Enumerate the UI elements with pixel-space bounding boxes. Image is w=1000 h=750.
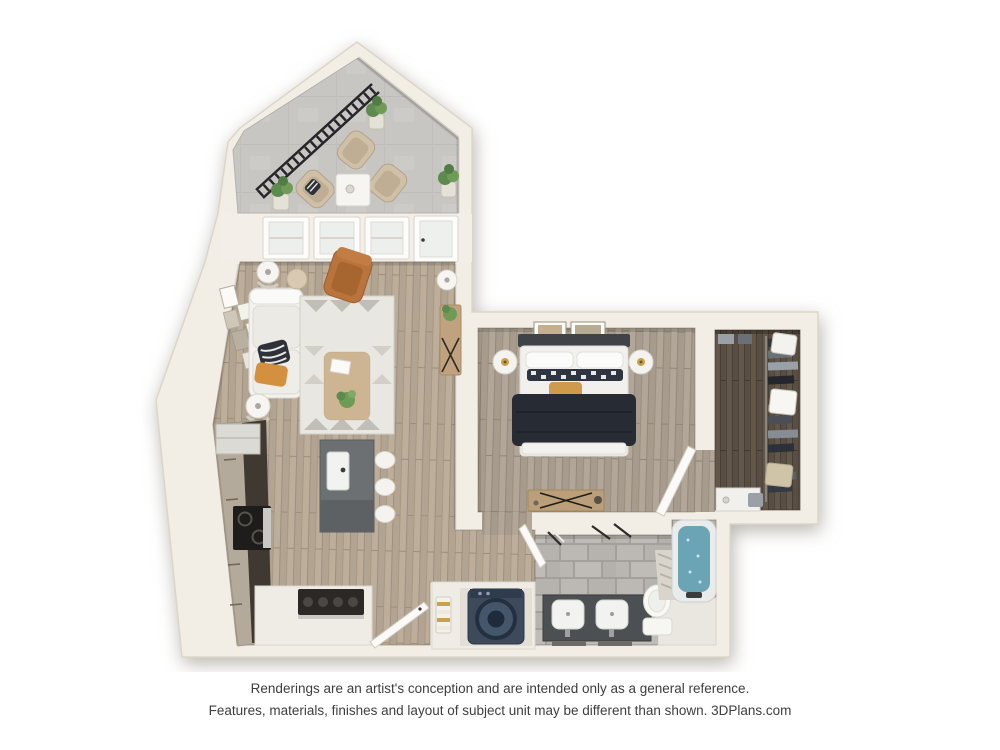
tub-faucet bbox=[686, 592, 702, 598]
closet-dresser bbox=[716, 488, 763, 511]
checkered-pillows bbox=[527, 369, 623, 381]
comforter bbox=[512, 394, 636, 446]
nightstand-left bbox=[493, 350, 517, 374]
cooktop bbox=[233, 506, 271, 550]
nightstand-right bbox=[629, 350, 653, 374]
bedroom-desk bbox=[528, 490, 604, 511]
disclaimer: Renderings are an artist's conception an… bbox=[0, 678, 1000, 722]
bedroom bbox=[478, 322, 715, 535]
kitchen-island bbox=[320, 440, 374, 532]
floor-lamp-right bbox=[437, 270, 457, 290]
bar-stools bbox=[375, 452, 395, 523]
walk-in-closet bbox=[715, 330, 800, 511]
bed bbox=[512, 334, 636, 456]
pillow bbox=[526, 352, 573, 368]
side-stool bbox=[287, 269, 307, 289]
floor-plan-rendering bbox=[0, 0, 1000, 672]
disclaimer-line-2: Features, materials, finishes and layout… bbox=[0, 700, 1000, 722]
refrigerator bbox=[216, 424, 260, 454]
balcony-side-table bbox=[336, 174, 370, 206]
floor-plan-page: Renderings are an artist's conception an… bbox=[0, 0, 1000, 750]
balcony bbox=[233, 58, 459, 213]
pillow bbox=[577, 352, 623, 368]
towel-ladder bbox=[436, 597, 451, 633]
island-sink bbox=[327, 452, 349, 490]
balcony-door bbox=[414, 216, 458, 262]
disclaimer-line-1: Renderings are an artist's conception an… bbox=[0, 678, 1000, 700]
sectional-sofa bbox=[249, 288, 303, 398]
console-table bbox=[440, 305, 461, 375]
coffee-table bbox=[324, 352, 370, 420]
window-1 bbox=[263, 217, 309, 259]
washer bbox=[468, 589, 524, 644]
bathroom bbox=[519, 520, 716, 646]
range-counter bbox=[255, 586, 372, 645]
bathtub bbox=[672, 520, 716, 602]
laundry-closet bbox=[432, 582, 535, 649]
window-3 bbox=[365, 217, 409, 259]
double-vanity bbox=[543, 595, 651, 646]
